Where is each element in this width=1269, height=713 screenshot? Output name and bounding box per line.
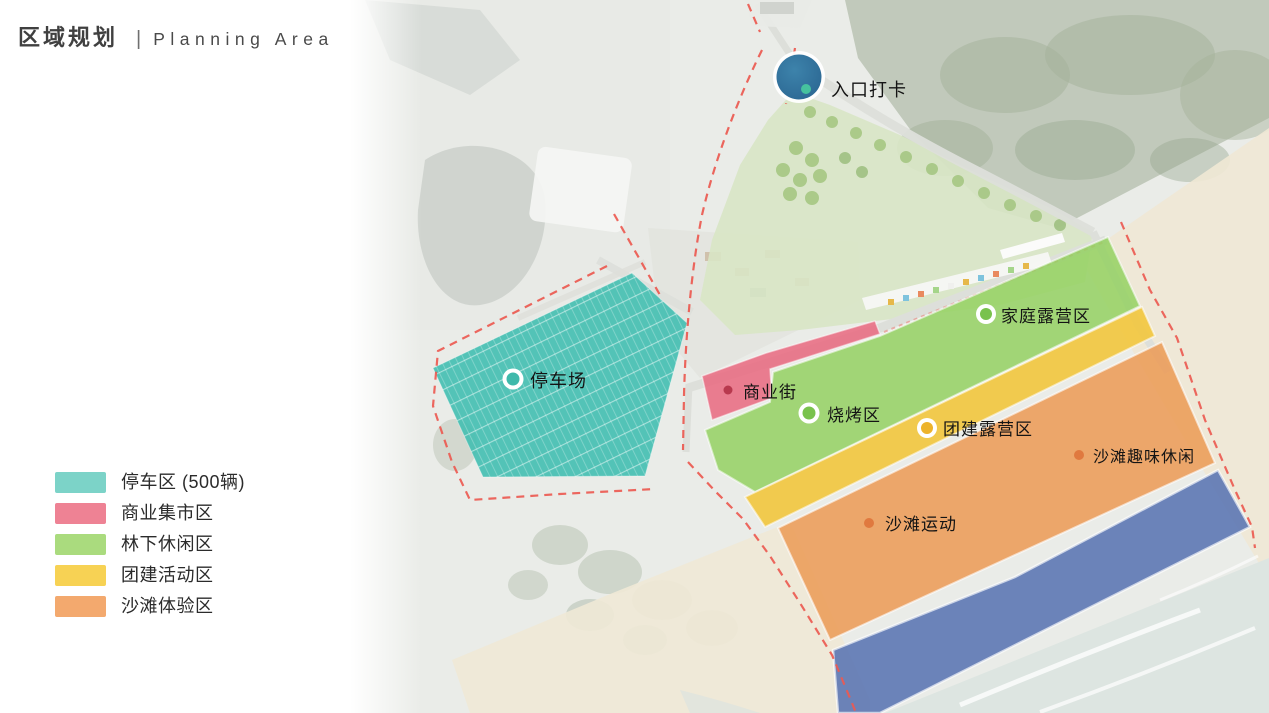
legend-item-forest-leisure-zone: 林下休闲区	[55, 533, 245, 556]
legend-swatch-parking-zone	[55, 472, 106, 493]
legend: 停车区 (500辆) 商业集市区 林下休闲区 团建活动区 沙滩体验区	[55, 471, 245, 618]
family-camping-label: 家庭露营区	[1001, 307, 1091, 326]
planning-area-slide: 入口打卡 停车场 商业街 烧烤区 家庭露营区 团建露营区 沙滩趣味休闲 沙滩运动…	[0, 0, 1269, 713]
legend-swatch-team-building-zone	[55, 565, 106, 586]
title-separator: |	[136, 28, 141, 51]
legend-item-team-building-zone: 团建活动区	[55, 564, 245, 587]
family-camping-marker	[976, 304, 996, 324]
left-panel-fade	[350, 0, 422, 713]
entrance-checkin-label: 入口打卡	[831, 80, 907, 100]
beach-sports-marker	[864, 518, 874, 528]
beach-fun-label: 沙滩趣味休闲	[1093, 448, 1195, 466]
legend-label-beach-experience-zone: 沙滩体验区	[121, 595, 214, 618]
legend-item-commercial-market-zone: 商业集市区	[55, 502, 245, 525]
bbq-area-marker	[799, 403, 820, 424]
parking-lot-label: 停车场	[530, 371, 587, 391]
legend-swatch-beach-experience-zone	[55, 596, 106, 617]
legend-label-commercial-market-zone: 商业集市区	[121, 502, 214, 525]
page-title-en: Planning Area	[153, 29, 333, 50]
beach-fun-marker	[1074, 450, 1084, 460]
commercial-street-marker	[724, 386, 733, 395]
legend-label-parking-zone: 停车区 (500辆)	[121, 471, 245, 494]
legend-swatch-forest-leisure-zone	[55, 534, 106, 555]
page-title-zh: 区域规划	[18, 20, 118, 52]
legend-label-forest-leisure-zone: 林下休闲区	[121, 533, 214, 556]
commercial-street-label: 商业街	[743, 383, 797, 402]
legend-item-beach-experience-zone: 沙滩体验区	[55, 595, 245, 618]
page-title: 区域规划 | Planning Area	[18, 20, 334, 52]
legend-swatch-commercial-market-zone	[55, 503, 106, 524]
entrance-checkin-marker	[773, 51, 825, 103]
bbq-area-label: 烧烤区	[827, 406, 881, 425]
parking-lot-marker	[503, 369, 524, 390]
team-camping-label: 团建露营区	[943, 420, 1033, 439]
beach-sports-label: 沙滩运动	[885, 515, 957, 534]
legend-label-team-building-zone: 团建活动区	[121, 564, 214, 587]
legend-item-parking-zone: 停车区 (500辆)	[55, 471, 245, 494]
team-camping-marker	[917, 418, 937, 438]
